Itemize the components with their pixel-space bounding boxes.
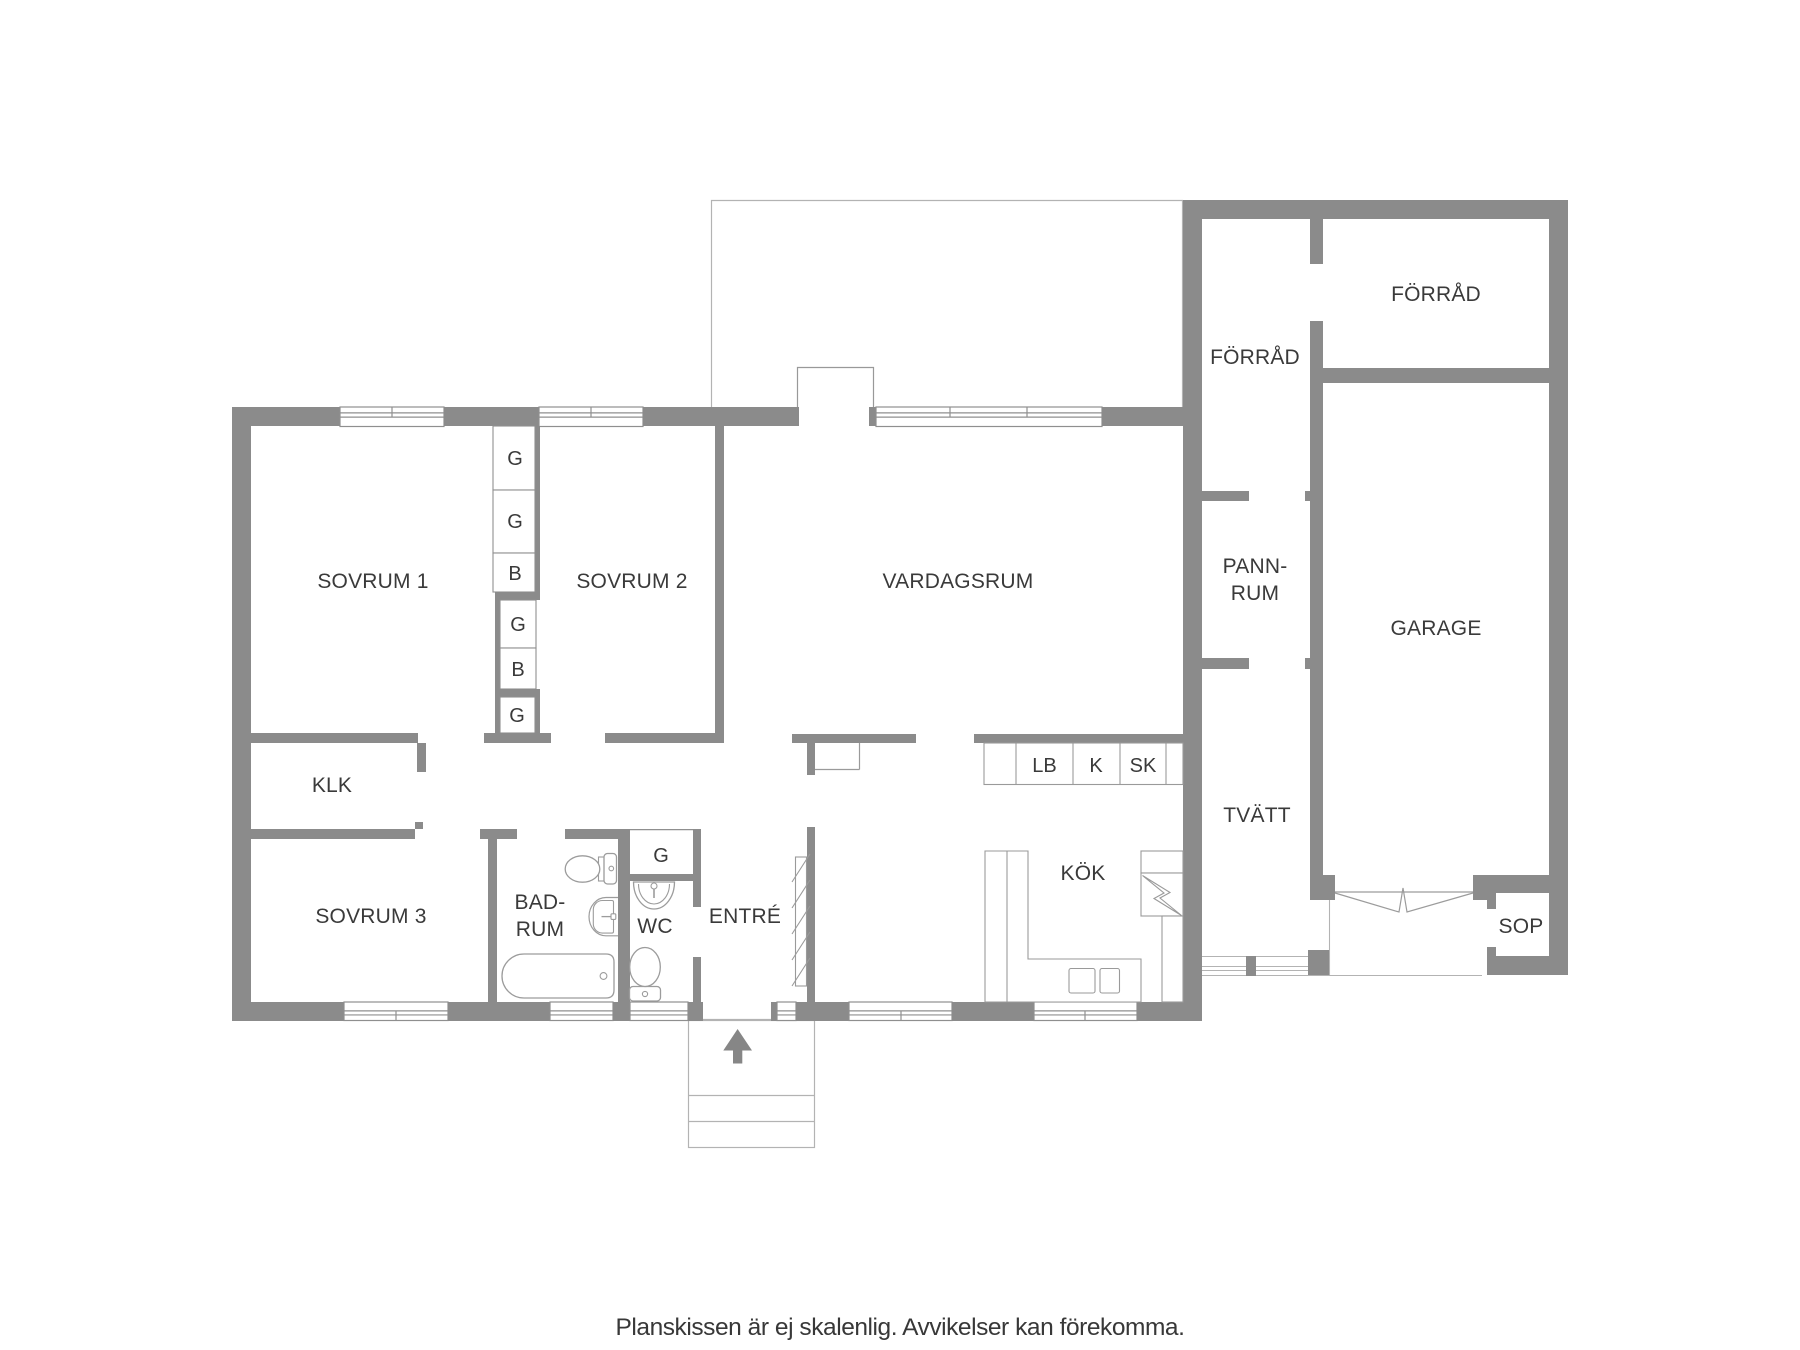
svg-text:Planskissen är ej skalenlig. A: Planskissen är ej skalenlig. Avvikelser … — [616, 1314, 1185, 1341]
svg-text:KÖK: KÖK — [1061, 862, 1106, 885]
svg-text:SOVRUM 3: SOVRUM 3 — [315, 905, 426, 928]
svg-text:RUM: RUM — [516, 918, 564, 941]
svg-text:SK: SK — [1130, 755, 1157, 777]
svg-text:RUM: RUM — [1231, 582, 1279, 605]
svg-text:SOVRUM 1: SOVRUM 1 — [317, 570, 428, 593]
svg-text:G: G — [507, 448, 523, 470]
svg-text:FÖRRÅD: FÖRRÅD — [1210, 346, 1300, 369]
svg-text:K: K — [1089, 755, 1103, 777]
svg-text:VARDAGSRUM: VARDAGSRUM — [883, 570, 1034, 593]
svg-text:SOVRUM 2: SOVRUM 2 — [576, 570, 687, 593]
svg-text:LB: LB — [1032, 755, 1056, 777]
svg-text:G: G — [510, 614, 526, 636]
svg-text:G: G — [509, 705, 525, 727]
svg-text:G: G — [653, 845, 669, 867]
svg-text:B: B — [508, 563, 521, 585]
svg-text:SOP: SOP — [1499, 915, 1544, 938]
svg-text:FÖRRÅD: FÖRRÅD — [1391, 283, 1481, 306]
svg-text:ENTRÉ: ENTRÉ — [709, 905, 781, 928]
svg-text:G: G — [507, 511, 523, 533]
svg-text:WC: WC — [637, 915, 672, 938]
svg-text:B: B — [511, 659, 524, 681]
svg-text:BAD-: BAD- — [515, 891, 566, 914]
svg-text:PANN-: PANN- — [1223, 555, 1288, 578]
svg-text:GARAGE: GARAGE — [1390, 617, 1481, 640]
svg-text:KLK: KLK — [312, 774, 352, 797]
svg-text:TVÄTT: TVÄTT — [1223, 804, 1291, 827]
